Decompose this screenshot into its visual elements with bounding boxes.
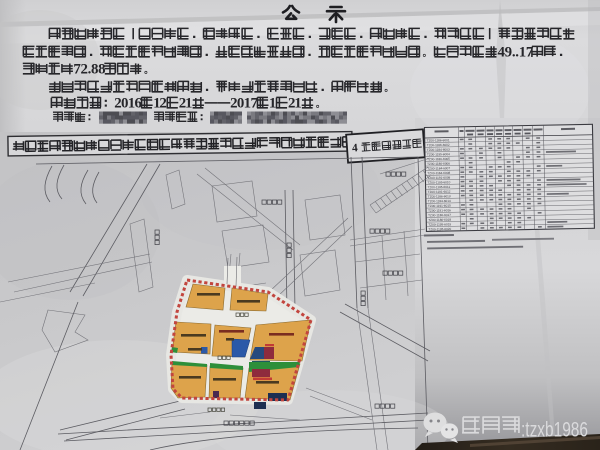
svg-text:4: 4 [352, 142, 359, 154]
svg-text:49..17: 49..17 [498, 44, 534, 60]
svg-text:2017: 2017 [230, 95, 258, 111]
svg-text:2016: 2016 [114, 95, 142, 111]
svg-text:TZ00-1195-6020: TZ00-1195-6020 [428, 227, 451, 231]
svg-text:21: 21 [288, 95, 302, 111]
svg-text:21: 21 [179, 95, 193, 111]
svg-text::tzxb1986: :tzxb1986 [521, 419, 588, 442]
svg-text:1: 1 [269, 95, 276, 111]
svg-text:72.88: 72.88 [73, 61, 105, 77]
svg-text:12: 12 [153, 95, 167, 111]
